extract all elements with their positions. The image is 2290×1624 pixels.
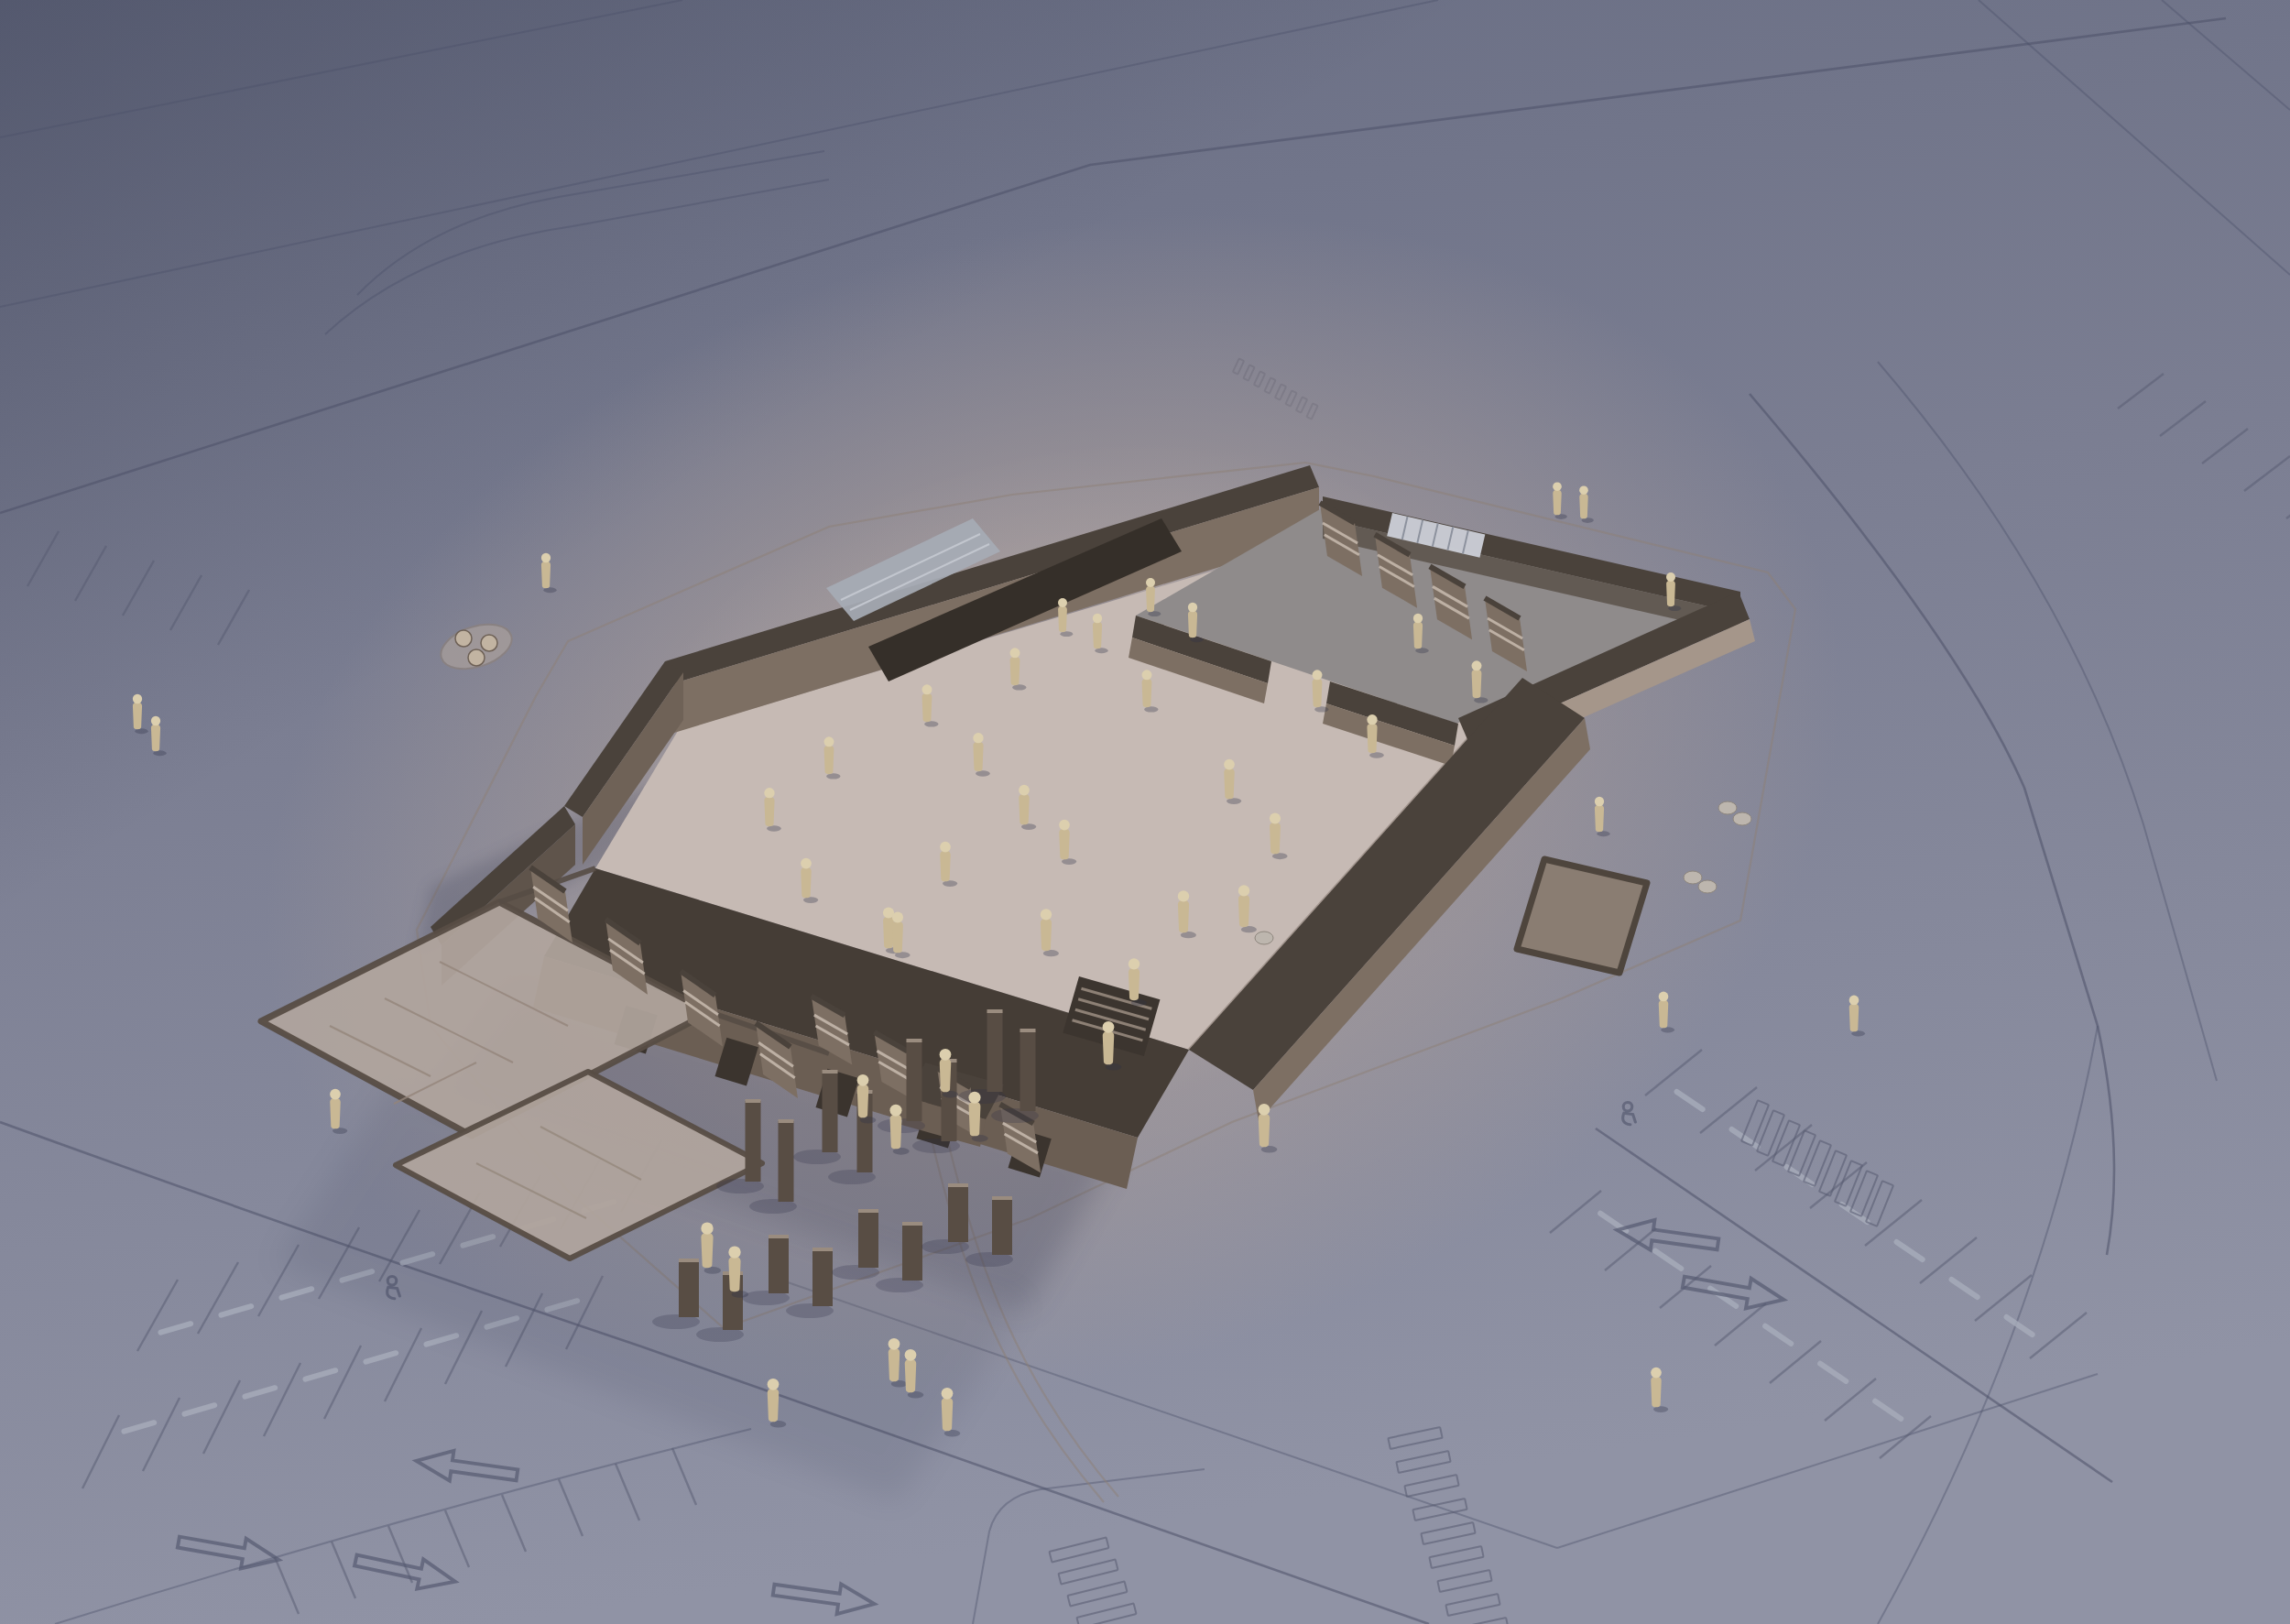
site-render xyxy=(0,0,2290,1624)
kiosk-pillar xyxy=(779,1121,794,1202)
kiosk-pillar xyxy=(746,1101,761,1182)
waste-bin xyxy=(481,635,497,651)
kiosk-pillar xyxy=(992,1198,1012,1255)
waste-bin xyxy=(468,649,485,666)
boulder xyxy=(1255,932,1273,944)
kiosk-pillar xyxy=(902,1224,922,1281)
boulder xyxy=(1718,801,1737,814)
boulder xyxy=(1684,871,1702,884)
boulder xyxy=(1698,880,1717,893)
waste-bin xyxy=(455,630,472,647)
kiosk-pillar xyxy=(812,1249,833,1306)
kiosk-pillar xyxy=(858,1211,878,1268)
boulder xyxy=(1733,812,1751,825)
kiosk-pillar xyxy=(987,1011,1003,1092)
kiosk-pillar xyxy=(823,1072,838,1152)
kiosk-pillar xyxy=(1020,1030,1036,1111)
architectural-render-canvas xyxy=(0,0,2290,1624)
kiosk-pillar xyxy=(679,1260,699,1317)
kiosk-pillar xyxy=(948,1185,968,1242)
southeast-kiosk xyxy=(1517,859,1647,973)
kiosk-pillar xyxy=(907,1041,922,1121)
kiosk-pillar xyxy=(769,1237,789,1293)
